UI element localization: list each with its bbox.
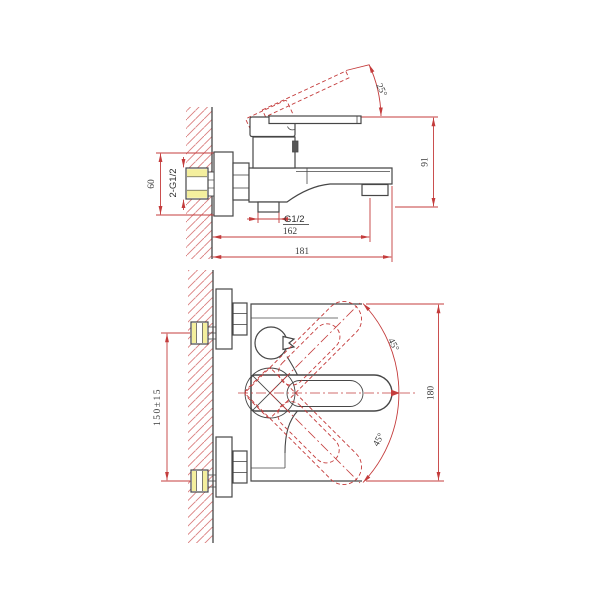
label-162: 162 <box>283 227 298 237</box>
shower-outlet <box>258 202 279 212</box>
eccentric-fitting-bottom <box>191 470 208 492</box>
knob-tab <box>283 337 294 350</box>
connection-nut-top <box>233 303 247 335</box>
wall-hatch-front <box>188 270 213 543</box>
handle-swing-overlay <box>238 294 416 492</box>
wall-flange-side <box>214 152 233 216</box>
wall-flange-bottom <box>216 437 232 497</box>
label-150: 150±15 <box>153 388 163 426</box>
handle-lever-side <box>269 116 361 124</box>
label-25deg: 25° <box>373 82 389 99</box>
label-45deg-lower: 45° <box>371 431 387 448</box>
aerator <box>362 185 388 196</box>
label-181: 181 <box>295 247 310 257</box>
connection-nut-bottom <box>233 451 247 483</box>
cartridge-neck <box>253 137 295 168</box>
label-91: 91 <box>421 157 431 167</box>
label-2-g12: 2-G1/2 <box>168 168 179 197</box>
eccentric-fitting-side <box>186 168 208 199</box>
neck-clip <box>293 141 299 152</box>
faucet-technical-drawing: 60 2-G1/2 G1/2 162 181 91 25° <box>0 0 600 600</box>
label-g12: G1/2 <box>284 214 305 225</box>
side-view: 60 2-G1/2 G1/2 162 181 91 25° <box>147 65 438 263</box>
label-45deg-upper: 45° <box>385 336 401 353</box>
eccentric-fitting-top <box>191 322 208 344</box>
label-60: 60 <box>147 179 157 189</box>
technical-drawing-page: 60 2-G1/2 G1/2 162 181 91 25° <box>0 0 600 600</box>
faucet-side-body <box>186 116 392 216</box>
wall-flange-top <box>216 289 232 349</box>
connection-nut-side <box>233 163 249 200</box>
front-view: 150±15 180 45° 45° <box>153 270 444 543</box>
label-180: 180 <box>427 386 437 401</box>
diverter-knob <box>255 327 287 359</box>
